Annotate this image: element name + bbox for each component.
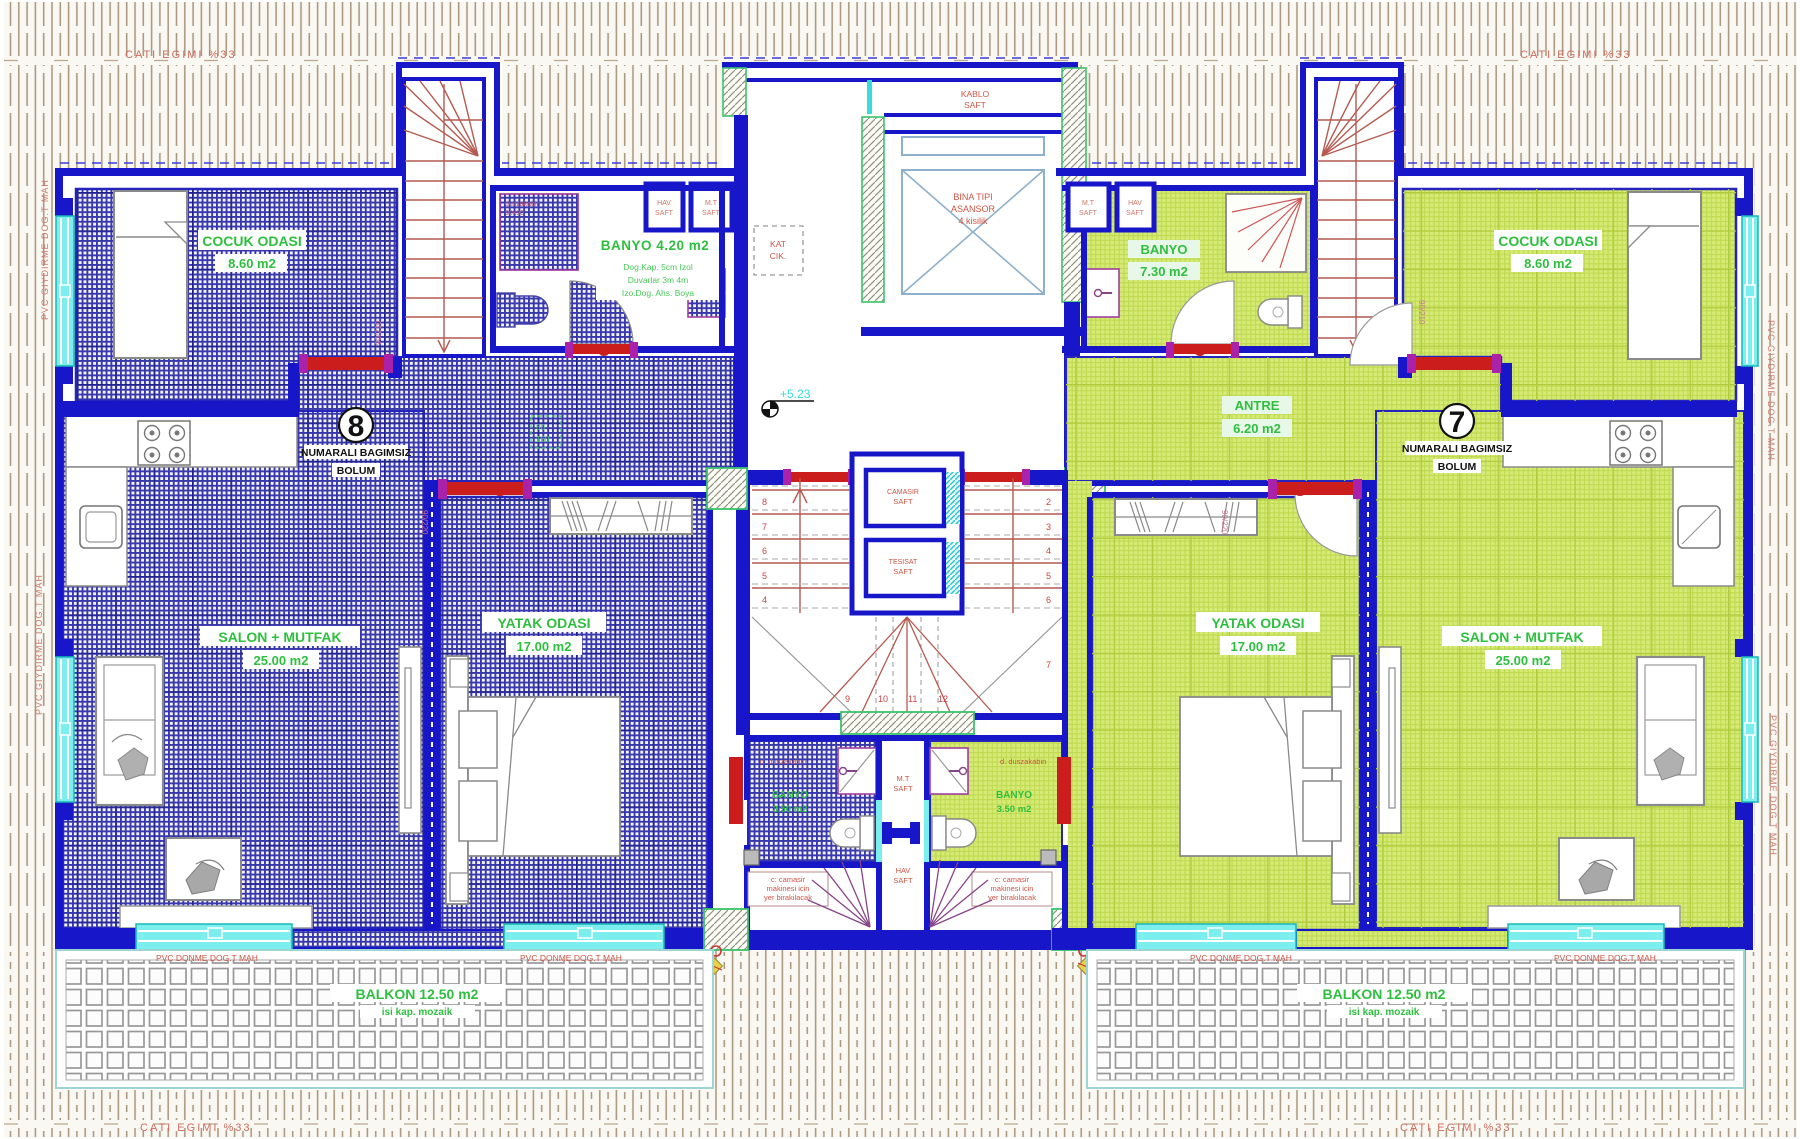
svg-text:ANTRE: ANTRE [1235,398,1280,413]
svg-text:duszakabin: duszakabin [505,201,541,208]
svg-text:BANYO: BANYO [996,790,1032,801]
svg-text:HAV: HAV [896,866,911,875]
svg-text:25.00 m2: 25.00 m2 [1496,653,1551,668]
svg-text:160: 160 [536,435,550,444]
svg-text:12: 12 [938,694,948,704]
svg-text:PVC DONME DOG.T MAH: PVC DONME DOG.T MAH [1190,953,1292,963]
svg-text:4: 4 [1046,546,1051,556]
svg-text:Izo.Dog. Ahs. Boya: Izo.Dog. Ahs. Boya [622,288,695,298]
svg-text:CIK.: CIK. [770,251,787,261]
svg-text:11: 11 [908,694,917,704]
svg-text:90x90: 90x90 [505,210,524,217]
svg-text:SAFT: SAFT [893,497,913,506]
svg-text:7.30 m2: 7.30 m2 [1140,264,1188,279]
svg-text:NUMARALI BAGIMSIZ: NUMARALI BAGIMSIZ [1402,443,1513,455]
svg-text:BANYO: BANYO [772,790,808,801]
svg-text:d. duszakabin: d. duszakabin [760,757,806,766]
svg-text:4 kisilik: 4 kisilik [958,216,988,226]
svg-text:3.50 m2: 3.50 m2 [773,804,808,815]
svg-text:Dog.Kap. 5cm Izol: Dog.Kap. 5cm Izol [623,262,693,272]
svg-text:SAFT: SAFT [893,567,913,576]
svg-text:6: 6 [1046,595,1051,605]
svg-text:6.20 m2: 6.20 m2 [1233,421,1281,436]
svg-text:SALON + MUTFAK: SALON + MUTFAK [218,629,341,645]
svg-text:BALKON 12.50 m2: BALKON 12.50 m2 [1323,986,1446,1002]
svg-text:isi kap. mozaik: isi kap. mozaik [382,1007,453,1018]
svg-text:BINA TIPI: BINA TIPI [953,192,992,202]
svg-text:NUMARALI BAGIMSIZ: NUMARALI BAGIMSIZ [301,447,412,459]
svg-text:5: 5 [1046,571,1051,581]
svg-text:PVC DONME DOG.T MAH: PVC DONME DOG.T MAH [520,953,622,963]
svg-text:CATI EGIMI %33: CATI EGIMI %33 [1400,1122,1512,1134]
svg-text:PVC GIYDIRME DOG.T MAH: PVC GIYDIRME DOG.T MAH [40,179,50,320]
svg-text:BOLUM: BOLUM [1438,461,1477,473]
svg-text:SAFT: SAFT [1079,210,1098,217]
svg-text:PVC GIYDIRME DOG.T MAH: PVC GIYDIRME DOG.T MAH [1768,715,1778,856]
svg-text:CATI EGIMI %33: CATI EGIMI %33 [125,49,237,61]
svg-text:PVC DONME DOG.T MAH: PVC DONME DOG.T MAH [156,953,258,963]
svg-text:2: 2 [1046,497,1051,507]
svg-text:makinesi icin: makinesi icin [767,884,810,893]
svg-text:PVC DONME DOG.T MAH: PVC DONME DOG.T MAH [1554,953,1656,963]
svg-text:YATAK ODASI: YATAK ODASI [497,615,590,631]
svg-text:CAMASIR: CAMASIR [887,489,919,496]
svg-text:makinesi icin: makinesi icin [991,884,1034,893]
svg-text:8.60 m2: 8.60 m2 [1524,256,1572,271]
svg-text:+5.23: +5.23 [780,387,811,401]
svg-text:5: 5 [762,571,767,581]
svg-text:7: 7 [1449,406,1466,439]
svg-text:yer birakilacak: yer birakilacak [988,893,1036,902]
svg-text:SAFT: SAFT [964,100,986,110]
svg-text:TESISAT: TESISAT [889,559,918,566]
svg-text:60: 60 [536,423,545,432]
svg-text:c: camasir: c: camasir [771,875,806,884]
svg-text:PVC GIYDIRME DOG.T MAH: PVC GIYDIRME DOG.T MAH [34,574,44,715]
svg-text:7: 7 [1046,660,1051,670]
svg-text:90/220: 90/220 [1220,510,1229,535]
svg-text:M.T: M.T [705,200,718,207]
svg-text:3.50 m2: 3.50 m2 [997,804,1032,815]
svg-text:SAFT: SAFT [1126,210,1145,217]
svg-text:c: camasir: c: camasir [995,875,1030,884]
svg-text:8.60 m2: 8.60 m2 [228,256,276,271]
svg-text:M.T: M.T [897,774,910,783]
svg-text:SAFT: SAFT [655,210,674,217]
svg-text:isi kap. mozaik: isi kap. mozaik [1349,1007,1420,1018]
svg-text:8: 8 [348,410,365,443]
svg-text:yer birakilacak: yer birakilacak [764,893,812,902]
svg-text:6: 6 [762,546,767,556]
svg-text:PVC GIYDIRME DOG.T MAH: PVC GIYDIRME DOG.T MAH [1766,320,1776,461]
svg-text:90/210: 90/210 [374,320,383,345]
svg-text:BOLUM: BOLUM [337,465,376,477]
svg-text:Duvarlar 3m 4m: Duvarlar 3m 4m [628,275,688,285]
svg-text:17.00 m2: 17.00 m2 [1231,639,1286,654]
svg-text:KAT: KAT [770,239,786,249]
svg-text:SAFT: SAFT [893,876,913,885]
svg-text:COCUK ODASI: COCUK ODASI [202,233,302,249]
svg-text:HAV: HAV [657,200,671,207]
svg-text:M.T: M.T [1082,200,1095,207]
svg-text:BANYO: BANYO [1141,242,1188,257]
svg-text:90/220: 90/220 [420,510,429,535]
svg-text:90/210: 90/210 [1417,300,1426,325]
svg-text:ASANSOR: ASANSOR [951,204,996,214]
svg-text:SAFT: SAFT [702,210,721,217]
svg-text:9: 9 [845,694,850,704]
svg-text:3: 3 [1046,522,1051,532]
svg-text:17.00 m2: 17.00 m2 [517,639,572,654]
svg-text:CATI EGIMI %33: CATI EGIMI %33 [140,1122,252,1134]
svg-text:8: 8 [762,497,767,507]
svg-text:KABLO: KABLO [961,89,990,99]
svg-text:4: 4 [762,595,767,605]
svg-text:YATAK ODASI: YATAK ODASI [1211,615,1304,631]
svg-text:COCUK ODASI: COCUK ODASI [1498,233,1598,249]
svg-text:d. duszakabin: d. duszakabin [1000,757,1046,766]
svg-text:SALON + MUTFAK: SALON + MUTFAK [1460,629,1583,645]
svg-text:BALKON 12.50 m2: BALKON 12.50 m2 [356,986,479,1002]
svg-text:CATI EGIMI %33: CATI EGIMI %33 [1520,49,1632,61]
svg-text:HAV: HAV [1128,200,1142,207]
svg-text:BANYO 4.20 m2: BANYO 4.20 m2 [601,238,710,253]
svg-text:25.00 m2: 25.00 m2 [254,653,309,668]
svg-text:SAFT: SAFT [893,784,913,793]
svg-text:10: 10 [878,694,888,704]
svg-text:7: 7 [762,522,767,532]
